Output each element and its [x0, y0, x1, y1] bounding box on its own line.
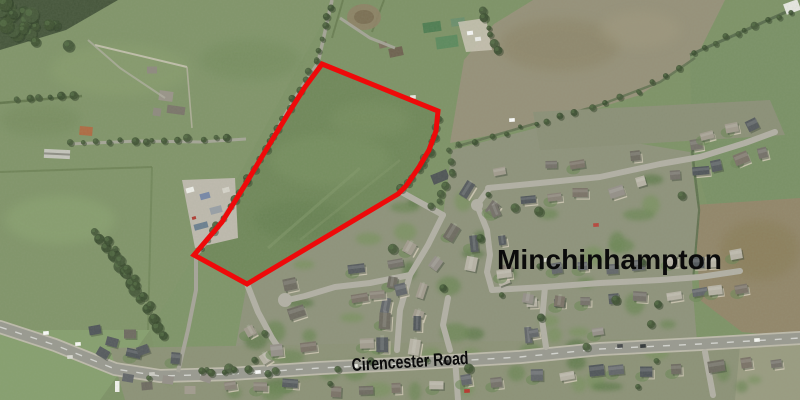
photo-grain-overlay	[0, 0, 800, 400]
aerial-map: Minchinhampton Cirencester Road	[0, 0, 800, 400]
place-label: Minchinhampton	[497, 244, 722, 275]
